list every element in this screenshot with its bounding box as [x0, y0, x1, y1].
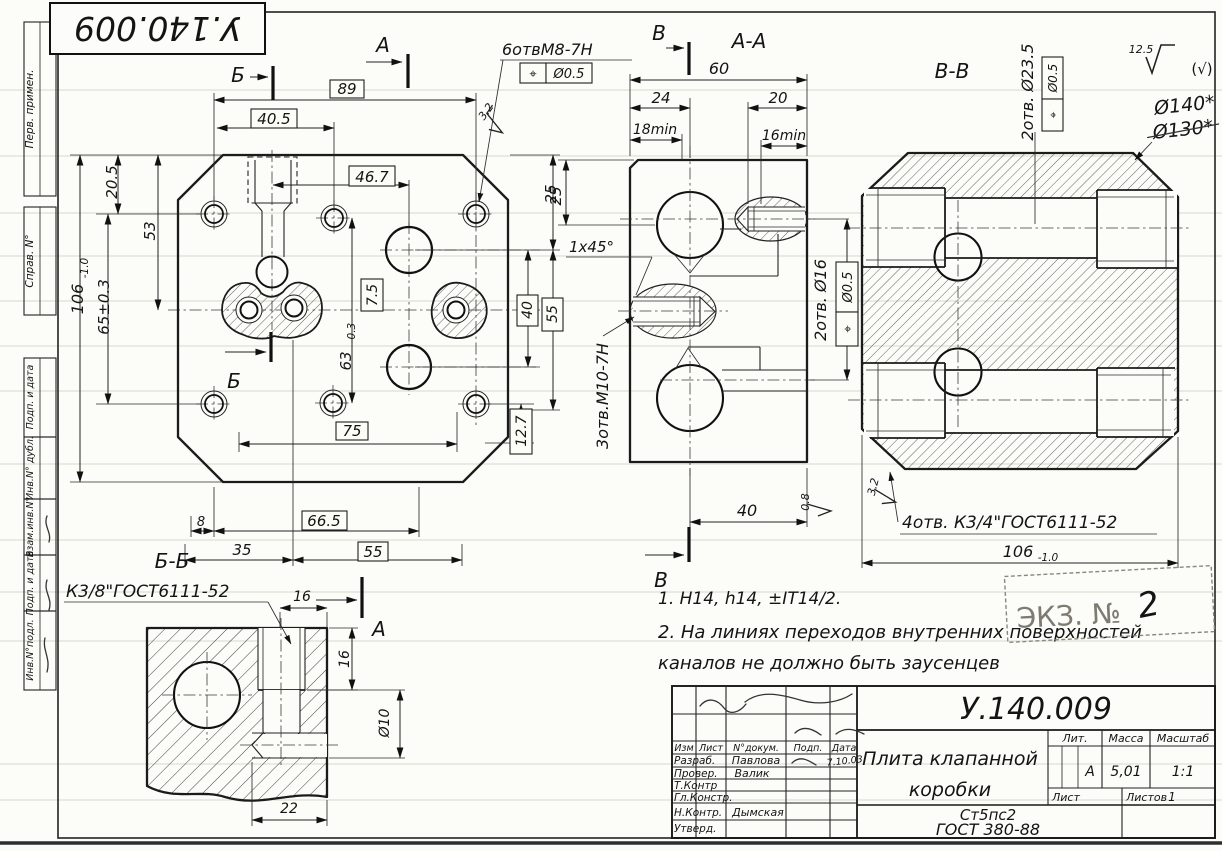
dim-53: 53 — [141, 221, 159, 240]
general-roughness: 12.5 (√) — [1129, 43, 1213, 78]
dim-89: 89 — [337, 80, 356, 98]
dim-106-vv-tol: -1.0 — [1038, 552, 1059, 564]
dim-20-5: 20.5 — [103, 165, 121, 198]
drawing-sheet: Перв. примен. Справ. N° Подп. и дата Инв… — [0, 0, 1222, 851]
main-view: 89 40.5 46.7 7.5 40 55 12.7 75 66.5 55 2… — [68, 33, 632, 566]
roughness-general-value: 12.5 — [1129, 43, 1154, 56]
tb-col-izm: Изм — [674, 743, 693, 754]
dim-d10: Ø10 — [377, 708, 393, 738]
note-1: 1. Н14, h14, ±IT14/2. — [658, 589, 841, 609]
roughness-corner-value: 3.2 — [865, 477, 882, 497]
tb-value-lit: А — [1084, 764, 1095, 780]
tb-part-name-2: коробки — [909, 779, 991, 801]
margin-label-podp2: Подп. и дата — [25, 550, 36, 615]
dim-40-5: 40.5 — [257, 110, 290, 128]
note-3: каналов не должно быть заусенцев — [658, 653, 1000, 674]
tb-row-tkontr: Т.Контр — [674, 780, 718, 792]
dim-66-5: 66.5 — [307, 512, 340, 530]
dim-40-aa: 40 — [737, 501, 757, 520]
roughness-bore: 0.8 — [799, 493, 831, 516]
dim-7-5: 7.5 — [365, 284, 381, 306]
handwritten-d130-struck: Ø130* — [1151, 116, 1215, 144]
section-aa-view: А-А 60 24 20 18min 16min 25 40 — [547, 21, 858, 592]
tb-material-2: ГОСТ 380-88 — [936, 820, 1040, 839]
margin-label-perv: Перв. примен. — [24, 70, 36, 149]
dim-20: 20 — [768, 89, 787, 107]
pos-tolerance-icon: ⌖ — [841, 325, 856, 333]
dim-24: 24 — [651, 89, 670, 107]
callout-m8-holes: 6отвМ8-7Н — [502, 40, 593, 59]
roughness-paren: (√) — [1191, 60, 1212, 78]
tb-part-name-1: Плита клапанной — [862, 748, 1038, 770]
callout-k34-holes: 4отв. К3/4"ГОСТ6111-52 — [902, 513, 1117, 533]
margin-label-vzam: Взам.инв.N° — [25, 497, 36, 557]
pos-tolerance-icon: ⌖ — [529, 67, 537, 82]
dim-65: 65±0.3 — [95, 279, 113, 335]
tb-val-prover: Валик — [734, 767, 769, 780]
margin-label-inv-podl: Инв.N°подл. — [25, 619, 36, 680]
dim-106: 106 — [68, 284, 87, 315]
dim-18min: 18min — [633, 122, 677, 138]
dim-106-vv: 106 — [1003, 542, 1034, 561]
callout-chamfer: 1x45° — [569, 238, 614, 256]
section-vv-title: В-В — [935, 59, 970, 83]
code-stamp-inverted: У.140.009 — [50, 3, 265, 54]
dim-75: 75 — [342, 422, 361, 440]
margin-label-inv-dubl: Инв.N° дубл. — [25, 436, 36, 500]
copy-stamp-label: ЭКЗ. № — [1016, 596, 1122, 634]
section-arrow-v-top: В — [652, 21, 666, 45]
tb-row-glkonstr: Гл.Констр. — [674, 792, 733, 804]
dim-16-top: 16 — [293, 589, 311, 605]
dim-35: 35 — [232, 541, 251, 559]
dim-12-7: 12.7 — [514, 415, 530, 446]
dim-25-aa: 25 — [547, 186, 565, 205]
callout-o235-holes: 2отв. Ø23.5 — [1018, 43, 1037, 140]
section-bb-title: Б-Б — [155, 549, 190, 573]
roughness-corner: 3.2 — [863, 477, 900, 507]
tb-header-lit: Лит. — [1061, 732, 1087, 745]
tb-header-massa: Масса — [1108, 732, 1143, 745]
section-arrow-b-top: Б — [231, 63, 245, 87]
tb-row-utverd: Утверд. — [674, 823, 716, 835]
dim-55-right: 55 — [545, 305, 561, 323]
blueprint-svg: Перв. примен. Справ. N° Подп. и дата Инв… — [0, 0, 1222, 851]
pos-tolerance-o16: Ø0.5 — [841, 272, 856, 304]
tb-col-dok: N°докум. — [733, 743, 779, 754]
tb-header-listov: Листов — [1125, 791, 1167, 804]
pos-tolerance-m8: Ø0.5 — [553, 67, 585, 82]
handwritten-correction: Ø140* Ø130* — [1144, 91, 1220, 144]
tb-value-masshtab: 1:1 — [1172, 764, 1195, 780]
callout-k38-thread: К3/8"ГОСТ6111-52 — [66, 582, 229, 602]
dim-16-right: 16 — [337, 650, 353, 668]
roughness-bore-value: 0.8 — [799, 493, 812, 511]
tb-val-nkontr: Дымская — [731, 806, 784, 819]
dim-16min: 16min — [762, 128, 806, 144]
tb-col-list: Лист — [698, 743, 724, 754]
pos-tolerance-o235: Ø0.5 — [1046, 64, 1060, 94]
code-stamp-text: У.140.009 — [74, 9, 241, 48]
dim-63-tol: -0.3 — [346, 323, 358, 344]
callout-o16-holes: 2отв. Ø16 — [811, 259, 830, 341]
tb-row-prover: Провер. — [674, 768, 718, 780]
section-aa-title: А-А — [730, 29, 767, 53]
pos-tolerance-icon: ⌖ — [1046, 111, 1060, 118]
tb-value-listov: 1 — [1168, 790, 1176, 804]
section-vv-view: В-В 2отв. Ø23.5 Ø0.5 ⌖ Ø140* Ø130* 4отв.… — [848, 43, 1220, 568]
margin-label-sprav: Справ. N° — [24, 234, 36, 287]
section-arrow-b-bottom: Б — [227, 369, 241, 393]
section-arrow-a-bottom: А — [370, 617, 386, 641]
dim-46-7: 46.7 — [355, 168, 389, 186]
tb-col-data: Дата — [831, 743, 857, 754]
tb-row-nkontr: Н.Контр. — [674, 807, 722, 819]
dim-60: 60 — [709, 59, 729, 78]
dim-8: 8 — [197, 515, 205, 530]
tb-val-razrab: Павлова — [732, 754, 781, 767]
margin-label-podp1: Подп. и дата — [25, 364, 36, 429]
title-block: У.140.009 Плита клапанной коробки Ст5пс2… — [672, 686, 1215, 839]
callout-m10-holes: 3отв.М10-7Н — [593, 343, 612, 449]
dim-40-right: 40 — [520, 301, 536, 319]
tb-col-podp: Подп. — [794, 743, 823, 754]
dim-55-bottom: 55 — [363, 543, 382, 561]
tb-doc-code: У.140.009 — [960, 692, 1112, 727]
section-arrow-a-top: А — [374, 33, 390, 57]
copy-stamp-number: 2 — [1134, 583, 1163, 626]
dim-22: 22 — [280, 801, 298, 817]
tb-value-massa: 5,01 — [1110, 764, 1141, 780]
dim-63: 63 — [337, 351, 355, 370]
tb-header-masshtab: Масштаб — [1157, 732, 1209, 745]
tb-row-razrab: Разраб. — [674, 755, 715, 767]
dim-106-tol: -1.0 — [79, 257, 91, 278]
section-bb-view: Б-Б К3/8"ГОСТ6111-52 16 16 Ø10 22 А — [64, 549, 405, 826]
tb-header-list: Лист — [1051, 791, 1080, 804]
